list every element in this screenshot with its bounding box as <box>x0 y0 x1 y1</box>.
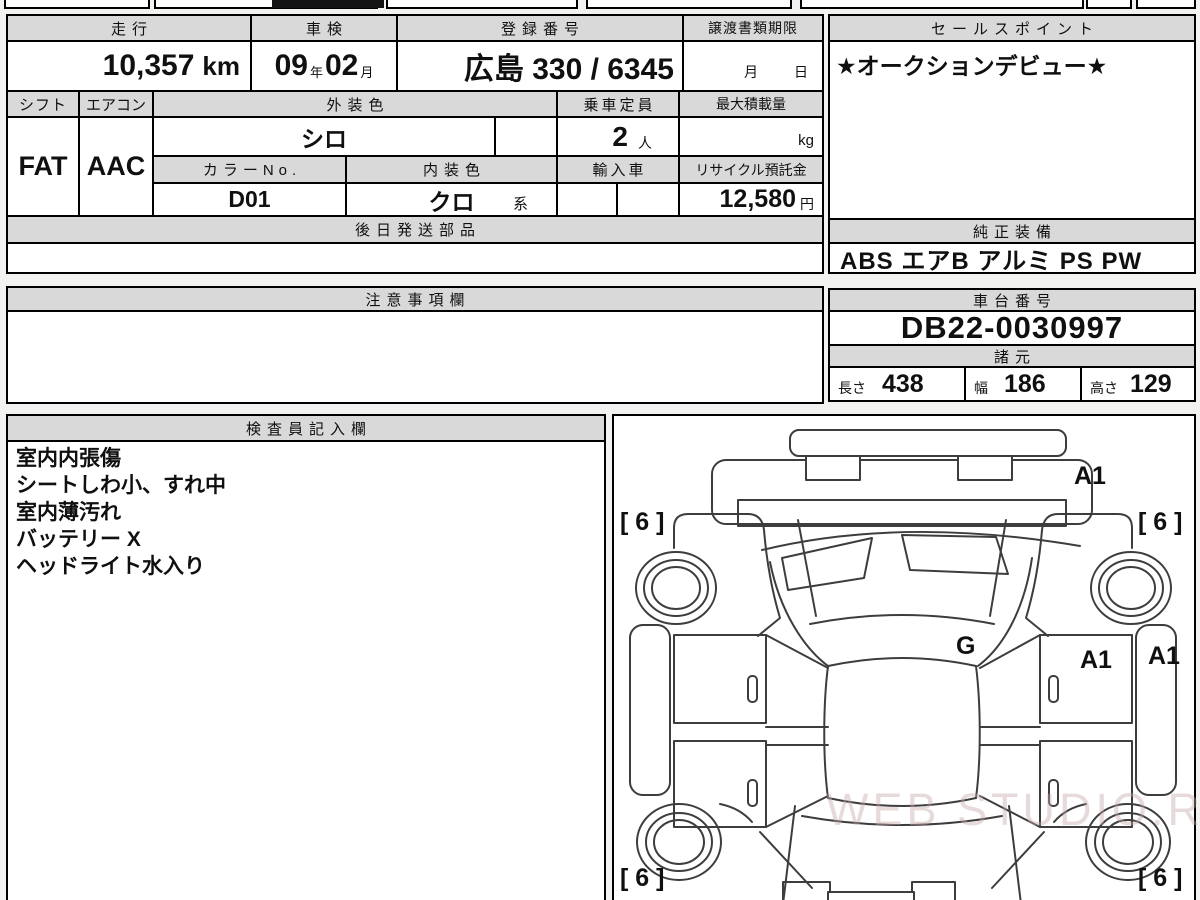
inspector-note-line: シートしわ小、すれ中 <box>16 472 596 499</box>
interior-color-header: 内装色 <box>345 155 558 184</box>
shift-text: FAT <box>19 151 68 182</box>
interior-color-suffix: 系 <box>513 193 528 214</box>
chassis-header: 車台番号 <box>828 288 1196 312</box>
car-diagram-panel: WEB STUDIO.RU A1 [ 6 ] [ 6 ] G A1 A1 [ 6… <box>612 414 1196 900</box>
cutoff-cell <box>800 0 1084 9</box>
diagram-mark-g-center: G <box>956 632 975 661</box>
capacity-number: 2 <box>612 121 628 153</box>
recycle-deposit-unit: 円 <box>800 194 814 214</box>
diagram-mark-six-bottom-left: [ 6 ] <box>620 864 664 893</box>
aircon-text: AAC <box>87 151 146 182</box>
shift-header: シフト <box>6 90 80 118</box>
cutoff-text-fragment <box>272 0 384 8</box>
recycle-deposit-number: 12,580 <box>720 185 796 214</box>
inspector-note-line: バッテリー X <box>16 526 596 553</box>
recycle-deposit-value: 12,580 円 <box>678 182 824 217</box>
sales-point-header: セールスポイント <box>828 14 1196 42</box>
inspector-note-line: 室内内張傷 <box>16 445 596 472</box>
imported-value-1 <box>556 182 618 217</box>
dimensions-header: 諸元 <box>828 344 1196 368</box>
exterior-color-value: シロ <box>152 116 496 157</box>
inspection-header: 車検 <box>250 14 398 42</box>
cutoff-cell <box>1136 0 1196 9</box>
width-label: 幅 <box>974 378 988 398</box>
sales-point-text: ★オークションデビュー★ <box>836 53 1107 79</box>
odometer-number: 10,357 <box>103 49 195 83</box>
inspector-note-line: ヘッドライト水入り <box>16 553 596 580</box>
odometer-header: 走行 <box>6 14 252 42</box>
length-label: 長さ <box>838 378 866 398</box>
later-parts-value <box>6 242 824 274</box>
capacity-value: 2 人 <box>556 116 680 157</box>
genuine-equipment-header: 純正装備 <box>828 218 1196 244</box>
exterior-color-subcell <box>494 116 558 157</box>
inspection-month: 02 <box>325 49 358 83</box>
inspection-value: 09 年 02 月 <box>250 40 398 92</box>
transfer-month-label: 月 <box>744 62 758 82</box>
transfer-docs-header: 譲渡書類期限 <box>682 14 824 42</box>
inspector-notes-header: 検査員記入欄 <box>6 414 606 442</box>
inspection-year-unit: 年 <box>310 62 323 81</box>
diagram-mark-a1-mid: A1 <box>1080 646 1112 675</box>
chassis-value: DB22-0030997 <box>828 310 1196 346</box>
odometer-unit: km <box>202 51 240 82</box>
dimension-width: 幅 186 <box>964 366 1082 402</box>
dimension-height: 高さ 129 <box>1080 366 1196 402</box>
dimension-length: 長さ 438 <box>828 366 966 402</box>
cutoff-cell <box>386 0 578 9</box>
recycle-deposit-header: リサイクル預託金 <box>678 155 824 184</box>
registration-number: 広島 330 / 6345 <box>464 44 674 88</box>
diagram-mark-a1-top: A1 <box>1074 462 1106 491</box>
diagram-mark-six-bottom-right: [ 6 ] <box>1138 864 1182 893</box>
aircon-header: エアコン <box>78 90 154 118</box>
color-no-text: D01 <box>228 186 270 213</box>
notice-header: 注意事項欄 <box>6 286 824 312</box>
imported-value-2 <box>616 182 680 217</box>
interior-color-value: クロ 系 <box>345 182 558 217</box>
inspection-year: 09 <box>275 49 308 83</box>
exterior-color-text: シロ <box>301 120 347 154</box>
max-load-value: kg <box>678 116 824 157</box>
exterior-color-header: 外装色 <box>152 90 558 118</box>
transfer-docs-value: 月 日 <box>682 40 824 92</box>
capacity-header: 乗車定員 <box>556 90 680 118</box>
length-value: 438 <box>882 370 924 399</box>
cutoff-cell <box>1086 0 1132 9</box>
max-load-unit: kg <box>798 132 814 149</box>
registration-value: 広島 330 / 6345 <box>396 40 684 92</box>
cutoff-cell <box>4 0 150 9</box>
aircon-value: AAC <box>78 116 154 217</box>
capacity-unit: 人 <box>638 133 652 153</box>
genuine-equipment-value: ABS エアB アルミ PS PW <box>828 242 1196 274</box>
interior-color-text: クロ <box>429 183 475 217</box>
genuine-equipment-text: ABS エアB アルミ PS PW <box>840 242 1142 274</box>
auction-sheet: 走行 車検 登録番号 譲渡書類期限 セールスポイント 10,357 km 09 … <box>0 0 1200 900</box>
inspection-month-unit: 月 <box>360 62 373 81</box>
height-label: 高さ <box>1090 378 1118 398</box>
diagram-mark-six-top-left: [ 6 ] <box>620 508 664 537</box>
diagram-mark-a1-right: A1 <box>1148 642 1180 671</box>
imported-header: 輸入車 <box>556 155 680 184</box>
color-no-value: D01 <box>152 182 347 217</box>
max-load-header: 最大積載量 <box>678 90 824 118</box>
notice-value <box>6 310 824 404</box>
cutoff-cell <box>586 0 792 9</box>
odometer-value: 10,357 km <box>6 40 252 92</box>
color-no-header: カラーNo. <box>152 155 347 184</box>
inspector-note-line: 室内薄汚れ <box>16 499 596 526</box>
shift-value: FAT <box>6 116 80 217</box>
later-parts-header: 後日発送部品 <box>6 215 824 244</box>
sales-point-value: ★オークションデビュー★ <box>828 40 1196 220</box>
diagram-mark-six-top-right: [ 6 ] <box>1138 508 1182 537</box>
inspector-notes-body: 室内内張傷 シートしわ小、すれ中 室内薄汚れ バッテリー X ヘッドライト水入り <box>6 440 606 900</box>
width-value: 186 <box>1004 370 1046 399</box>
registration-header: 登録番号 <box>396 14 684 42</box>
height-value: 129 <box>1130 370 1172 399</box>
transfer-day-label: 日 <box>794 62 808 82</box>
chassis-number-text: DB22-0030997 <box>901 310 1123 346</box>
